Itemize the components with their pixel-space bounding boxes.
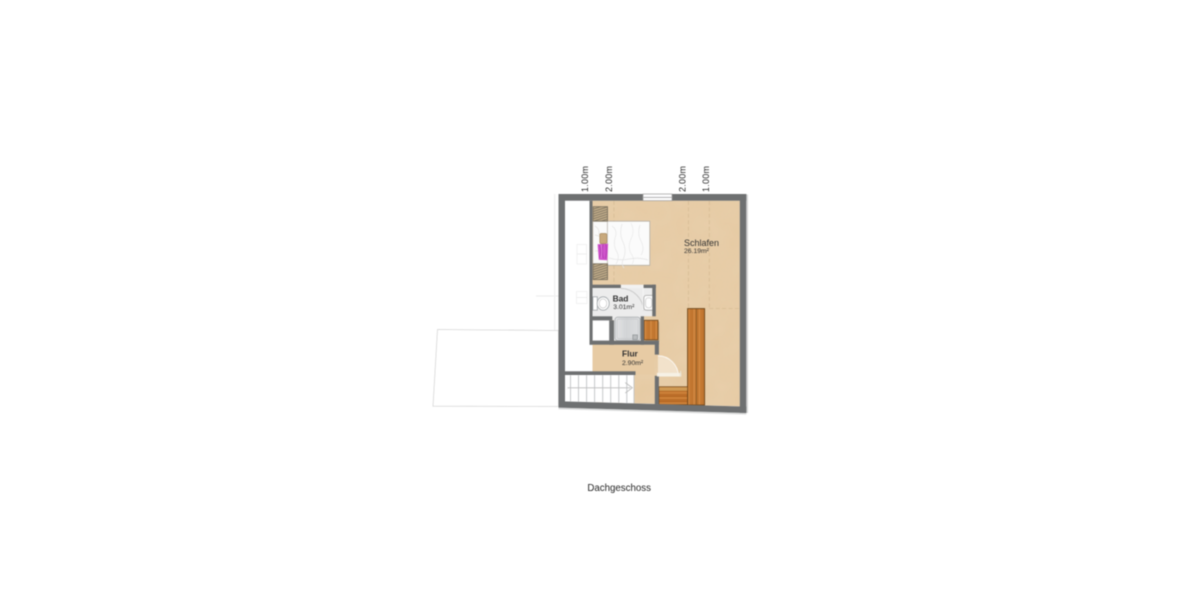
svg-text:Flur: Flur (622, 349, 639, 359)
svg-text:Dachgeschoss: Dachgeschoss (587, 483, 651, 494)
svg-text:2.90m²: 2.90m² (622, 360, 644, 367)
svg-text:3.01m²: 3.01m² (613, 304, 635, 311)
svg-text:1.00m: 1.00m (701, 166, 711, 192)
svg-text:1.00m: 1.00m (580, 166, 590, 192)
svg-text:2.00m: 2.00m (604, 166, 614, 192)
svg-text:2.00m: 2.00m (677, 166, 687, 192)
svg-text:Schlafen: Schlafen (684, 238, 719, 248)
svg-text:26.19m²: 26.19m² (684, 248, 710, 255)
svg-text:Bad: Bad (613, 293, 629, 303)
